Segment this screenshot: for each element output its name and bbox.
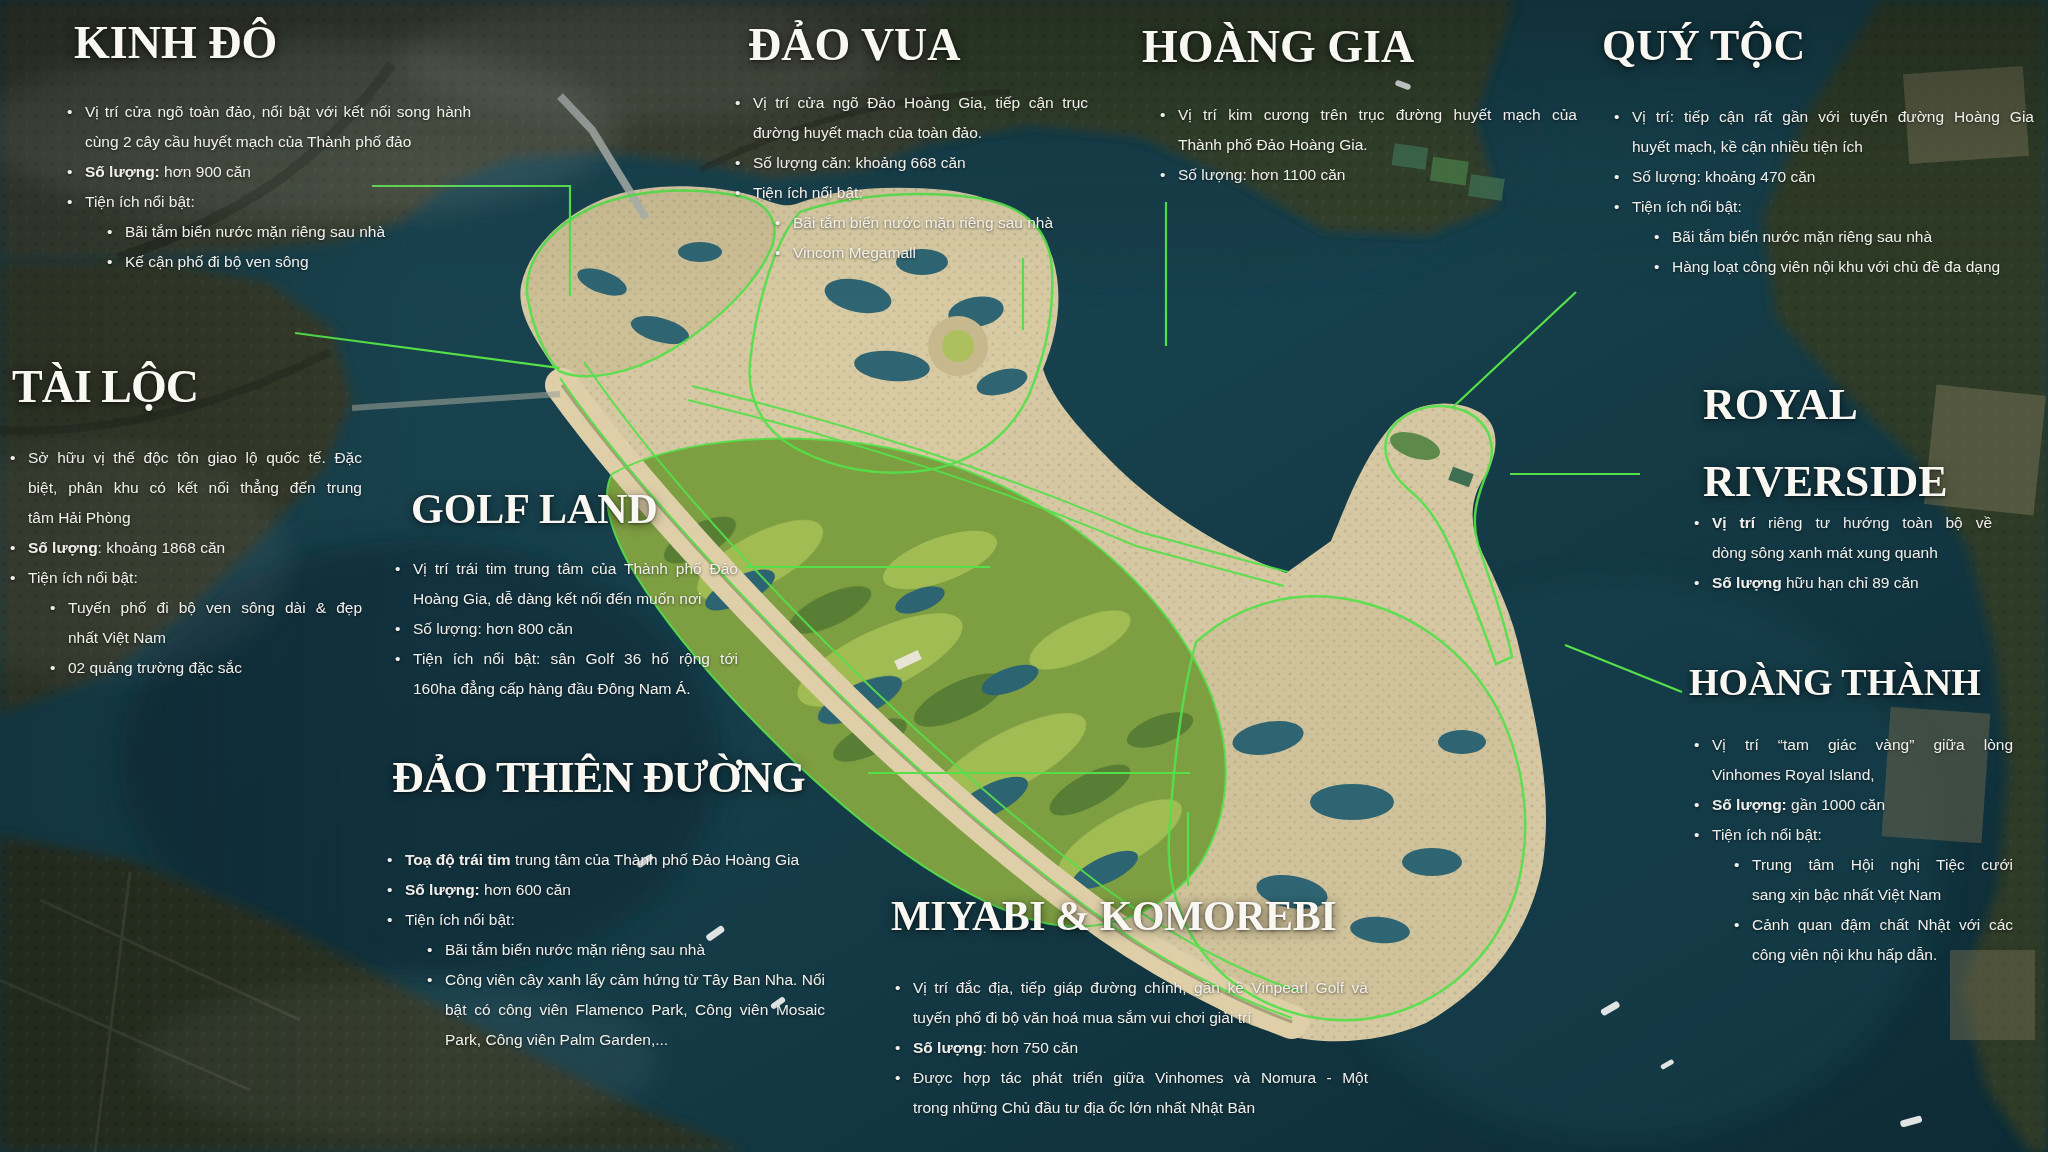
bullet-dot: • — [1614, 192, 1619, 222]
zone-bullets-quy-toc: •Vị trí: tiếp cận rất gần với tuyến đườn… — [1610, 102, 2034, 282]
bullet-item: •Bãi tắm biển nước mặn riêng sau nhà — [1650, 222, 2034, 252]
bullet-item: •Vị trí “tam giác vàng” giữa lòngVinhome… — [1690, 730, 2013, 790]
bullet-item: •Bãi tắm biển nước mặn riêng sau nhà — [103, 217, 471, 247]
zone-title-royal-riverside: ROYAL RIVERSIDE — [1703, 366, 1948, 520]
bullet-item: •Số lượng: hơn 600 căn — [383, 875, 825, 905]
bullet-dot: • — [1734, 910, 1739, 940]
zone-title-dao-vua: ĐẢO VUA — [748, 20, 961, 70]
bullet-dot: • — [67, 157, 72, 187]
bullet-dot: • — [735, 148, 740, 178]
bullet-item: •Trung tâm Hội nghị Tiệc cướisang xịn bậ… — [1730, 850, 2013, 910]
bullet-dot: • — [387, 875, 392, 905]
bullet-dot: • — [1614, 102, 1619, 132]
zone-bullets-miyabi-komorebi: •Vị trí đắc địa, tiếp giáp đường chính, … — [891, 973, 1368, 1123]
bullet-item: •Kế cận phố đi bộ ven sông — [103, 247, 471, 277]
bullet-item: •Số lượng: hơn 800 căn — [391, 614, 738, 644]
bullet-dot: • — [1160, 160, 1165, 190]
bullet-dot: • — [895, 973, 900, 1003]
bullet-dot: • — [775, 238, 780, 268]
bullet-item: •Số lượng: khoảng 1868 căn — [6, 533, 362, 563]
bullet-item: •Vị trí kim cương trên trục đường huyết … — [1156, 100, 1577, 160]
bullet-dot: • — [1654, 222, 1659, 252]
bullet-dot: • — [1654, 252, 1659, 282]
zone-title-miyabi-komorebi: MIYABI & KOMOREBI — [891, 894, 1336, 939]
zone-bullets-kinh-do: •Vị trí cửa ngõ toàn đảo, nổi bật với kế… — [63, 97, 471, 277]
bullet-item: •Vị trí cửa ngõ Đảo Hoàng Gia, tiếp cận … — [731, 88, 1088, 148]
bullet-dot: • — [1694, 790, 1699, 820]
bullet-dot: • — [427, 935, 432, 965]
bullet-item: •Tiện ích nổi bật: — [1610, 192, 2034, 222]
bullet-dot: • — [395, 614, 400, 644]
zone-title-hoang-thanh: HOÀNG THÀNH — [1689, 662, 1981, 703]
zone-title-tai-loc: TÀI LỘC — [12, 362, 198, 412]
bullet-item: •Công viên cây xanh lấy cảm hứng từ Tây … — [423, 965, 825, 1055]
bullet-item: •Tiện ích nổi bật: — [383, 905, 825, 935]
zone-title-hoang-gia: HOÀNG GIA — [1142, 22, 1414, 72]
bullet-dot: • — [107, 217, 112, 247]
bullet-dot: • — [1694, 508, 1699, 538]
bullet-item: •Bãi tắm biển nước mặn riêng sau nhà — [771, 208, 1088, 238]
bullet-dot: • — [427, 965, 432, 995]
bullet-item: •Toạ độ trái tim trung tâm của Thành phố… — [383, 845, 825, 875]
bullet-item: •Vị trí riêng tư hướng toàn bộ vềdòng sô… — [1690, 508, 1992, 568]
bullet-dot: • — [67, 97, 72, 127]
bullet-dot: • — [1694, 820, 1699, 850]
bullet-dot: • — [895, 1063, 900, 1093]
zone-title-dao-thien-duong: ĐẢO THIÊN ĐƯỜNG — [392, 754, 805, 802]
bullet-item: •Cảnh quan đậm chất Nhật với cáccông viê… — [1730, 910, 2013, 970]
bullet-dot: • — [1694, 730, 1699, 760]
bullet-item: •Số lượng: hơn 900 căn — [63, 157, 471, 187]
bullet-item: •Số lượng: khoảng 470 căn — [1610, 162, 2034, 192]
bullet-item: •Vị trí trái tim trung tâm của Thành phố… — [391, 554, 738, 614]
bullet-dot: • — [387, 845, 392, 875]
bullet-item: •Vincom Megamall — [771, 238, 1088, 268]
bullet-dot: • — [10, 533, 15, 563]
bullet-item: •Được hợp tác phát triển giữa Vinhomes v… — [891, 1063, 1368, 1123]
zone-title-golf-land: GOLF LAND — [411, 487, 658, 532]
zone-title-kinh-do: KINH ĐÔ — [74, 18, 277, 68]
bullet-item: •Số lượng: hơn 1100 căn — [1156, 160, 1577, 190]
bullet-item: •Bãi tắm biển nước mặn riêng sau nhà — [423, 935, 825, 965]
bullet-item: •Số lượng: gần 1000 căn — [1690, 790, 2013, 820]
bullet-dot: • — [395, 554, 400, 584]
bullet-dot: • — [1694, 568, 1699, 598]
bullet-dot: • — [1160, 100, 1165, 130]
masterplan-infographic: KINH ĐÔ •Vị trí cửa ngõ toàn đảo, nổi bậ… — [0, 0, 2048, 1152]
bullet-dot: • — [50, 653, 55, 683]
bullet-item: •Số lượng căn: khoảng 668 căn — [731, 148, 1088, 178]
bullet-dot: • — [10, 443, 15, 473]
bullet-item: •Tiện ích nổi bật: — [731, 178, 1088, 208]
zone-bullets-dao-vua: •Vị trí cửa ngõ Đảo Hoàng Gia, tiếp cận … — [731, 88, 1088, 268]
zone-bullets-hoang-gia: •Vị trí kim cương trên trục đường huyết … — [1156, 100, 1577, 190]
bullet-item: •Số lượng hữu hạn chỉ 89 căn — [1690, 568, 1992, 598]
zone-bullets-tai-loc: •Sở hữu vị thế độc tôn giao lộ quốc tế. … — [6, 443, 362, 683]
bullet-item: •Vị trí đắc địa, tiếp giáp đường chính, … — [891, 973, 1368, 1033]
bullet-item: •Hàng loạt công viên nội khu với chủ đề … — [1650, 252, 2034, 282]
bullet-item: •Tiện ích nổi bật: — [6, 563, 362, 593]
bullet-item: •Tiện ích nổi bật: — [1690, 820, 2013, 850]
zone-bullets-dao-thien-duong: •Toạ độ trái tim trung tâm của Thành phố… — [383, 845, 825, 1055]
bullet-dot: • — [1614, 162, 1619, 192]
bullet-dot: • — [387, 905, 392, 935]
bullet-item: •02 quảng trường đặc sắc — [46, 653, 362, 683]
bullet-dot: • — [895, 1033, 900, 1063]
bullet-dot: • — [67, 187, 72, 217]
bullet-dot: • — [107, 247, 112, 277]
bullet-item: •Tiện ích nổi bật: — [63, 187, 471, 217]
bullet-dot: • — [735, 88, 740, 118]
bullet-dot: • — [395, 644, 400, 674]
zone-bullets-royal-riverside: •Vị trí riêng tư hướng toàn bộ vềdòng sô… — [1690, 508, 1992, 598]
zone-title-quy-toc: QUÝ TỘC — [1602, 22, 1805, 70]
bullet-item: •Sở hữu vị thế độc tôn giao lộ quốc tế. … — [6, 443, 362, 533]
zone-title-line-1: ROYAL — [1703, 366, 1948, 443]
bullet-dot: • — [50, 593, 55, 623]
bullet-item: •Vị trí: tiếp cận rất gần với tuyến đườn… — [1610, 102, 2034, 162]
zone-bullets-hoang-thanh: •Vị trí “tam giác vàng” giữa lòngVinhome… — [1690, 730, 2013, 970]
bullet-item: •Tuyến phố đi bộ ven sông dài & đẹpnhất … — [46, 593, 362, 653]
bullet-dot: • — [775, 208, 780, 238]
bullet-item: •Số lượng: hơn 750 căn — [891, 1033, 1368, 1063]
bullet-dot: • — [735, 178, 740, 208]
bullet-dot: • — [1734, 850, 1739, 880]
bullet-item: •Tiện ích nổi bật: sân Golf 36 hố rộng t… — [391, 644, 738, 704]
bullet-dot: • — [10, 563, 15, 593]
bullet-item: •Vị trí cửa ngõ toàn đảo, nổi bật với kế… — [63, 97, 471, 157]
zone-bullets-golf-land: •Vị trí trái tim trung tâm của Thành phố… — [391, 554, 738, 704]
